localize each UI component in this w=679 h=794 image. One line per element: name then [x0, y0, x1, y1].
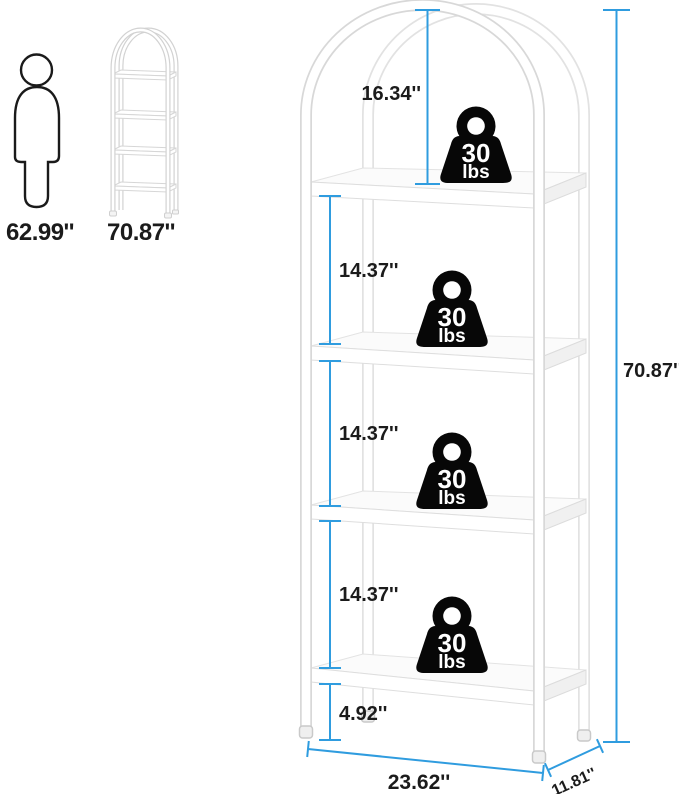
- dimension-bottom-clearance: [319, 684, 341, 740]
- bottom-clearance-label: 4.92'': [339, 703, 387, 725]
- shelf-gap-2-label: 14.37'': [339, 423, 399, 445]
- human-figure-icon: [15, 55, 59, 208]
- width-label: 23.62'': [388, 771, 451, 794]
- weight-unit-label: lbs: [438, 326, 465, 347]
- weight-icon-tier-3: 30 lbs: [416, 433, 487, 510]
- arch-to-top-shelf-label: 16.34'': [361, 83, 421, 105]
- weight-icon-tier-4: 30 lbs: [416, 597, 487, 674]
- reference-shelf-height-label: 70.87'': [107, 219, 175, 246]
- shelf-gap-3-label: 14.37'': [339, 584, 399, 606]
- front-left-foot: [300, 726, 313, 738]
- weight-unit-label: lbs: [462, 162, 489, 183]
- weight-icon-tier-1: 30 lbs: [440, 107, 511, 184]
- total-height-label: 70.87'': [623, 360, 679, 382]
- dimension-shelf-gap-1: [319, 196, 341, 344]
- diagram-svg: 62.99'': [0, 0, 679, 794]
- human-height-label: 62.99'': [6, 219, 74, 246]
- bookshelf-illustration: 30 lbs 30 lbs 30 lbs 30 lbs: [300, 5, 591, 763]
- front-right-foot: [533, 751, 546, 763]
- dimension-shelf-gap-3: [319, 521, 341, 668]
- dimension-shelf-gap-2: [319, 361, 341, 506]
- back-right-foot: [578, 730, 591, 741]
- weight-icon-tier-2: 30 lbs: [416, 271, 487, 348]
- weight-unit-label: lbs: [438, 488, 465, 509]
- weight-unit-label: lbs: [438, 652, 465, 673]
- reference-shelf-icon: [110, 30, 179, 218]
- depth-label: 11.81'': [549, 765, 599, 794]
- shelf-gap-1-label: 14.37'': [339, 260, 399, 282]
- product-dimension-diagram: 62.99'': [0, 0, 679, 794]
